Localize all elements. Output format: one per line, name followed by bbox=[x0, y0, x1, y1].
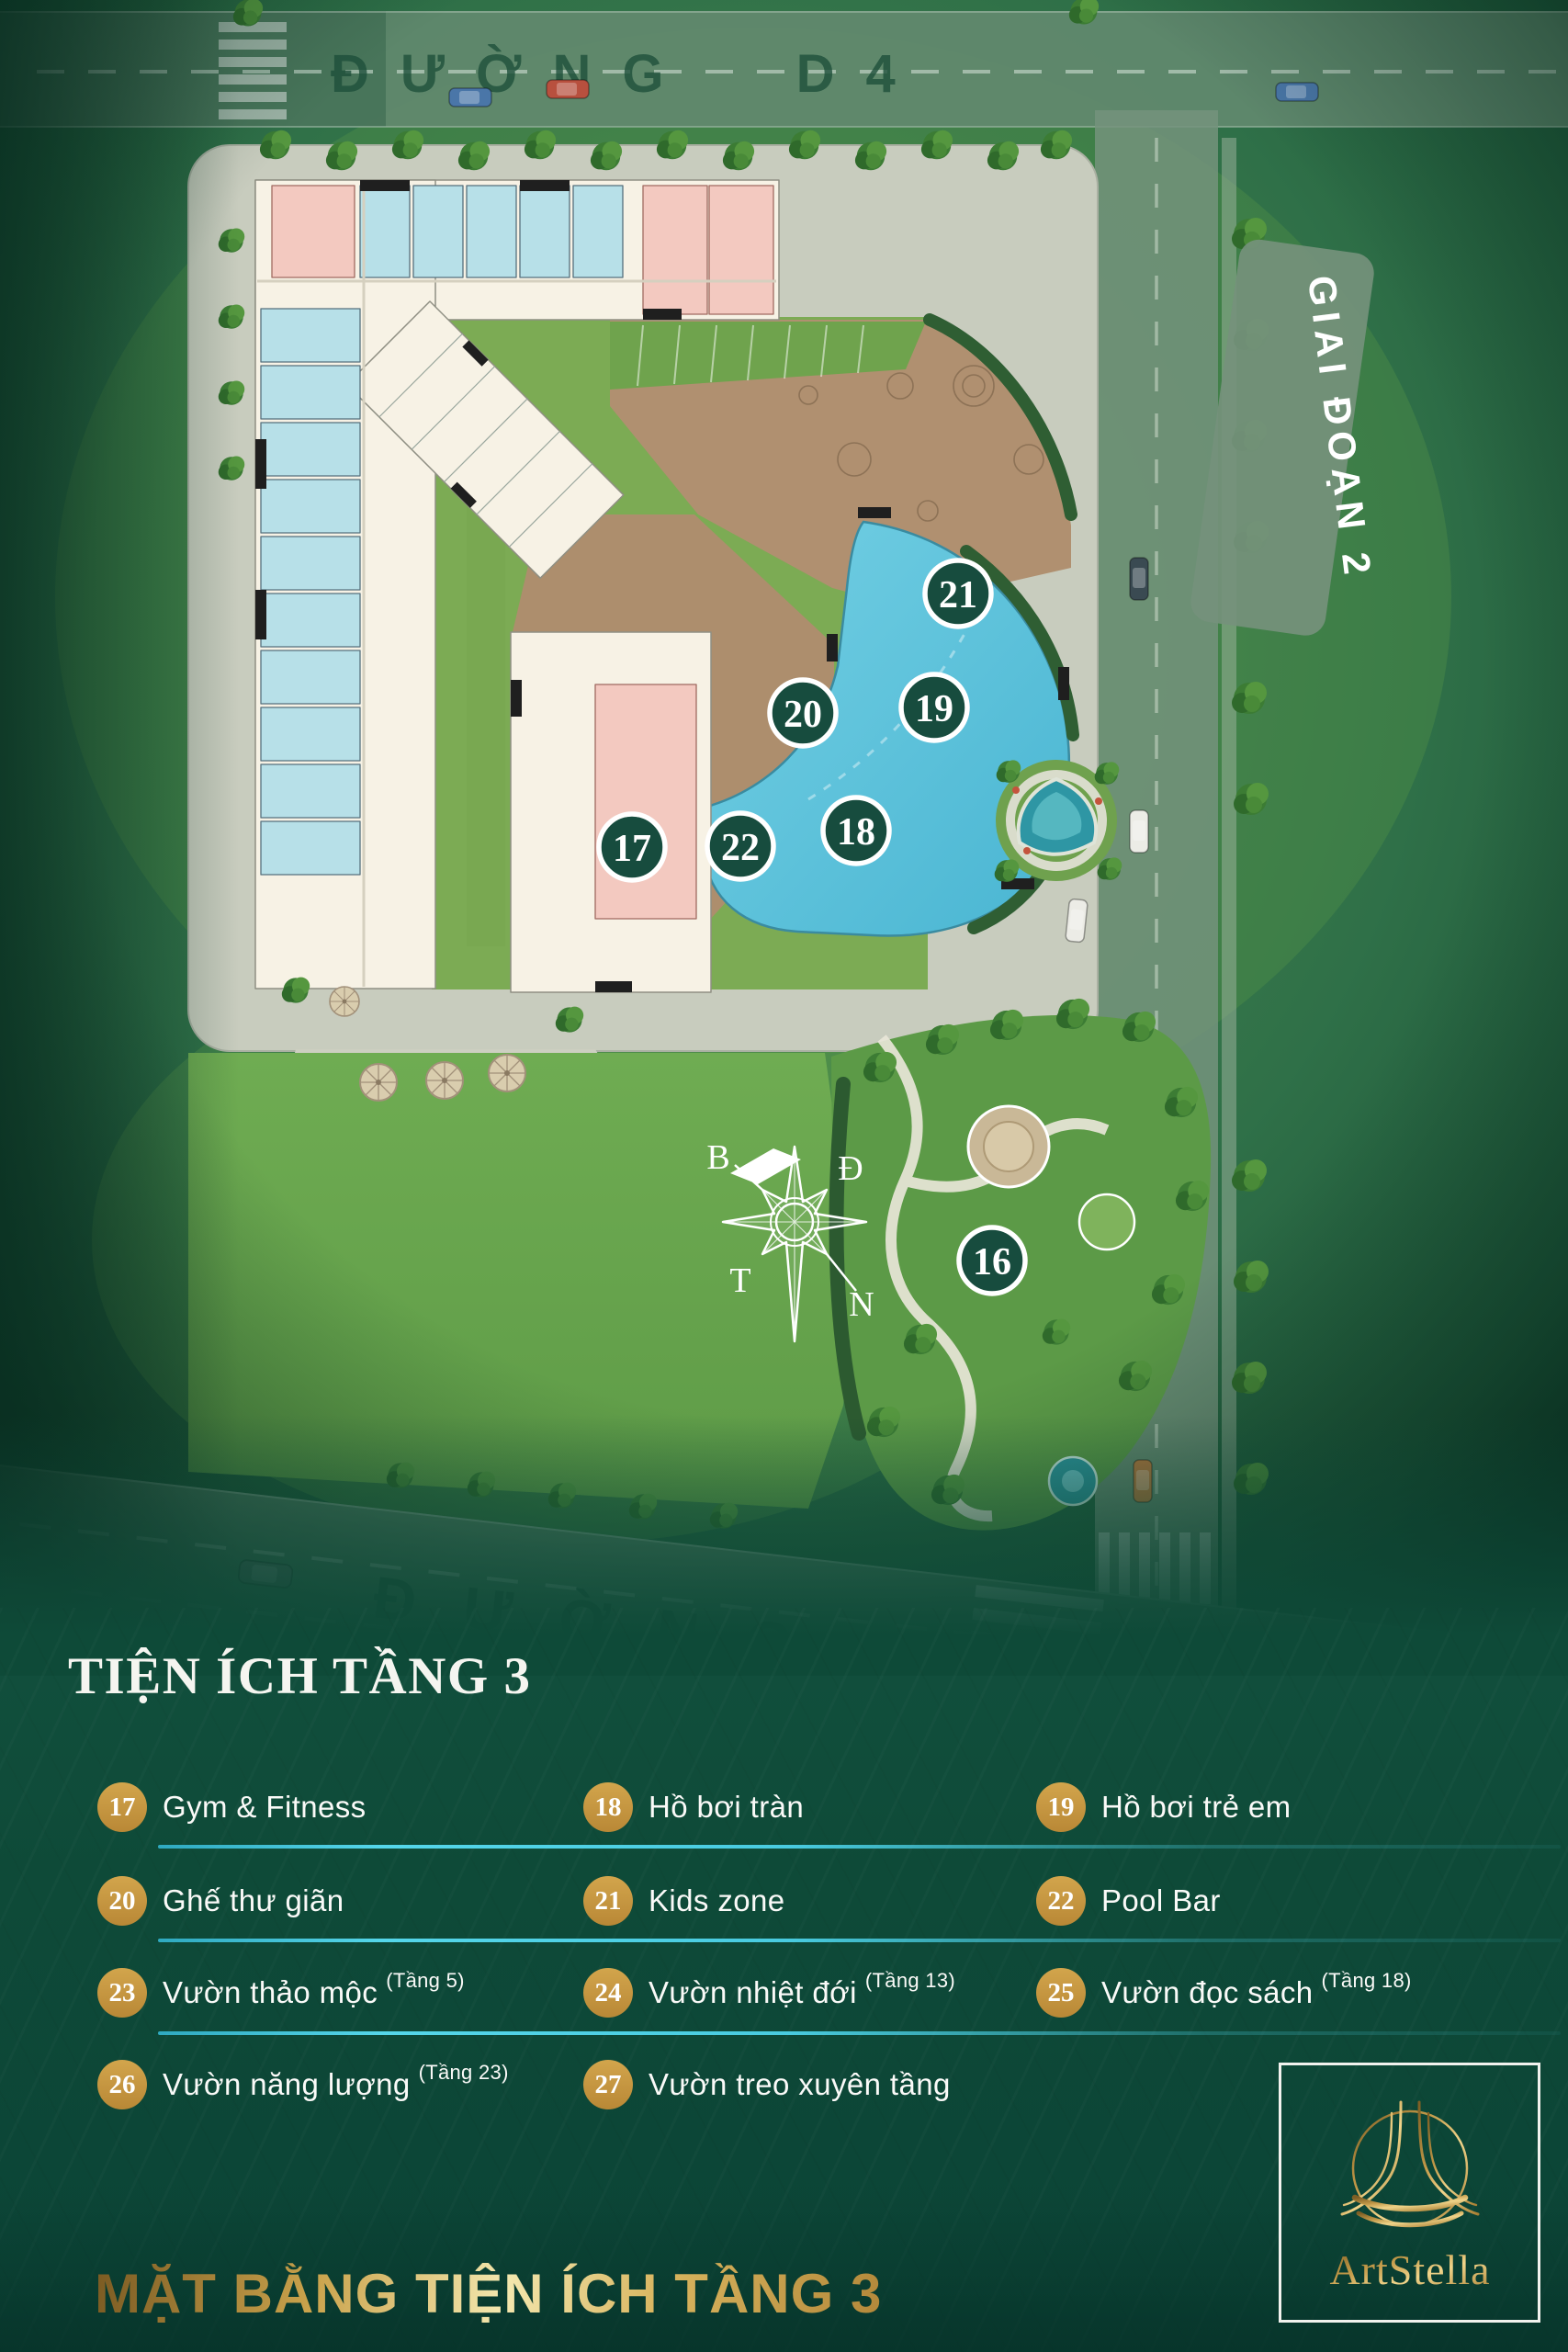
legend-badge: 26 bbox=[97, 2060, 147, 2109]
legend-title: TIỆN ÍCH TẦNG 3 bbox=[68, 1646, 531, 1706]
legend-item-label: Vườn năng lượng bbox=[163, 2067, 411, 2102]
svg-text:16: 16 bbox=[973, 1241, 1011, 1283]
legend-separator bbox=[158, 1939, 1561, 1942]
marker-17: 17 bbox=[599, 814, 665, 880]
logo-emblem: ArtStella bbox=[1281, 2065, 1538, 2320]
legend-item-label: Ghế thư giãn bbox=[163, 1883, 344, 1918]
legend-item-label: Vườn thảo mộc bbox=[163, 1975, 378, 2010]
site-plan: ĐƯỜNG D4 bbox=[0, 0, 1568, 1676]
legend-item-label: Hồ bơi trẻ em bbox=[1101, 1790, 1292, 1825]
legend-item-27: 27 Vườn treo xuyên tầng bbox=[583, 2058, 951, 2111]
svg-text:20: 20 bbox=[784, 694, 822, 736]
brand-name: ArtStella bbox=[1329, 2246, 1490, 2293]
legend-item-23: 23 Vườn thảo mộc (Tầng 5) bbox=[97, 1966, 465, 2019]
svg-text:21: 21 bbox=[939, 574, 977, 616]
legend-badge: 27 bbox=[583, 2060, 633, 2109]
legend-item-label: Pool Bar bbox=[1101, 1883, 1221, 1918]
svg-text:17: 17 bbox=[613, 828, 651, 870]
svg-text:22: 22 bbox=[721, 827, 760, 869]
marker-18: 18 bbox=[823, 797, 889, 864]
legend-badge: 24 bbox=[583, 1968, 633, 2018]
marker-19: 19 bbox=[901, 674, 967, 741]
legend-item-22: 22 Pool Bar bbox=[1036, 1874, 1221, 1928]
fountain-lines bbox=[1342, 2093, 1478, 2225]
legend-item-25: 25 Vườn đọc sách (Tầng 18) bbox=[1036, 1966, 1412, 2019]
legend-item-label: Kids zone bbox=[649, 1883, 785, 1918]
masterplan-poster: ĐƯỜNG D4 bbox=[0, 0, 1568, 2352]
marker-20: 20 bbox=[770, 680, 836, 746]
svg-text:19: 19 bbox=[915, 688, 953, 730]
legend-badge: 17 bbox=[97, 1782, 147, 1832]
legend-floor-note: (Tầng 13) bbox=[865, 1969, 955, 1993]
footer-title: MẶT BẰNG TIỆN ÍCH TẦNG 3 bbox=[95, 2262, 882, 2325]
legend-item-label: Vườn đọc sách bbox=[1101, 1975, 1314, 2010]
legend-item-label: Vườn nhiệt đới bbox=[649, 1975, 857, 2010]
legend-floor-note: (Tầng 18) bbox=[1322, 1969, 1412, 1993]
legend-item-18: 18 Hồ bơi tràn bbox=[583, 1781, 804, 1834]
svg-text:18: 18 bbox=[837, 811, 875, 854]
legend-item-label: Hồ bơi tràn bbox=[649, 1790, 804, 1825]
legend-badge: 22 bbox=[1036, 1876, 1086, 1926]
legend-floor-note: (Tầng 23) bbox=[419, 2061, 509, 2085]
marker-21: 21 bbox=[925, 560, 991, 627]
legend-item-label: Vườn treo xuyên tầng bbox=[649, 2067, 951, 2102]
legend-item-17: 17 Gym & Fitness bbox=[97, 1781, 367, 1834]
legend-badge: 18 bbox=[583, 1782, 633, 1832]
legend-badge: 19 bbox=[1036, 1782, 1086, 1832]
marker-22: 22 bbox=[707, 813, 773, 879]
legend-item-19: 19 Hồ bơi trẻ em bbox=[1036, 1781, 1292, 1834]
legend-floor-note: (Tầng 5) bbox=[386, 1969, 465, 1993]
legend-separator bbox=[158, 1845, 1561, 1849]
legend-item-21: 21 Kids zone bbox=[583, 1874, 785, 1928]
brand-logo: ArtStella bbox=[1279, 2063, 1540, 2323]
legend-item-26: 26 Vườn năng lượng (Tầng 23) bbox=[97, 2058, 509, 2111]
marker-16: 16 bbox=[959, 1227, 1025, 1294]
legend-item-label: Gym & Fitness bbox=[163, 1790, 367, 1825]
legend-badge: 20 bbox=[97, 1876, 147, 1926]
legend-badge: 23 bbox=[97, 1968, 147, 2018]
legend-badge: 21 bbox=[583, 1876, 633, 1926]
legend-item-20: 20 Ghế thư giãn bbox=[97, 1874, 344, 1928]
legend-badge: 25 bbox=[1036, 1968, 1086, 2018]
legend-item-24: 24 Vườn nhiệt đới (Tầng 13) bbox=[583, 1966, 955, 2019]
legend-separator bbox=[158, 2031, 1561, 2035]
